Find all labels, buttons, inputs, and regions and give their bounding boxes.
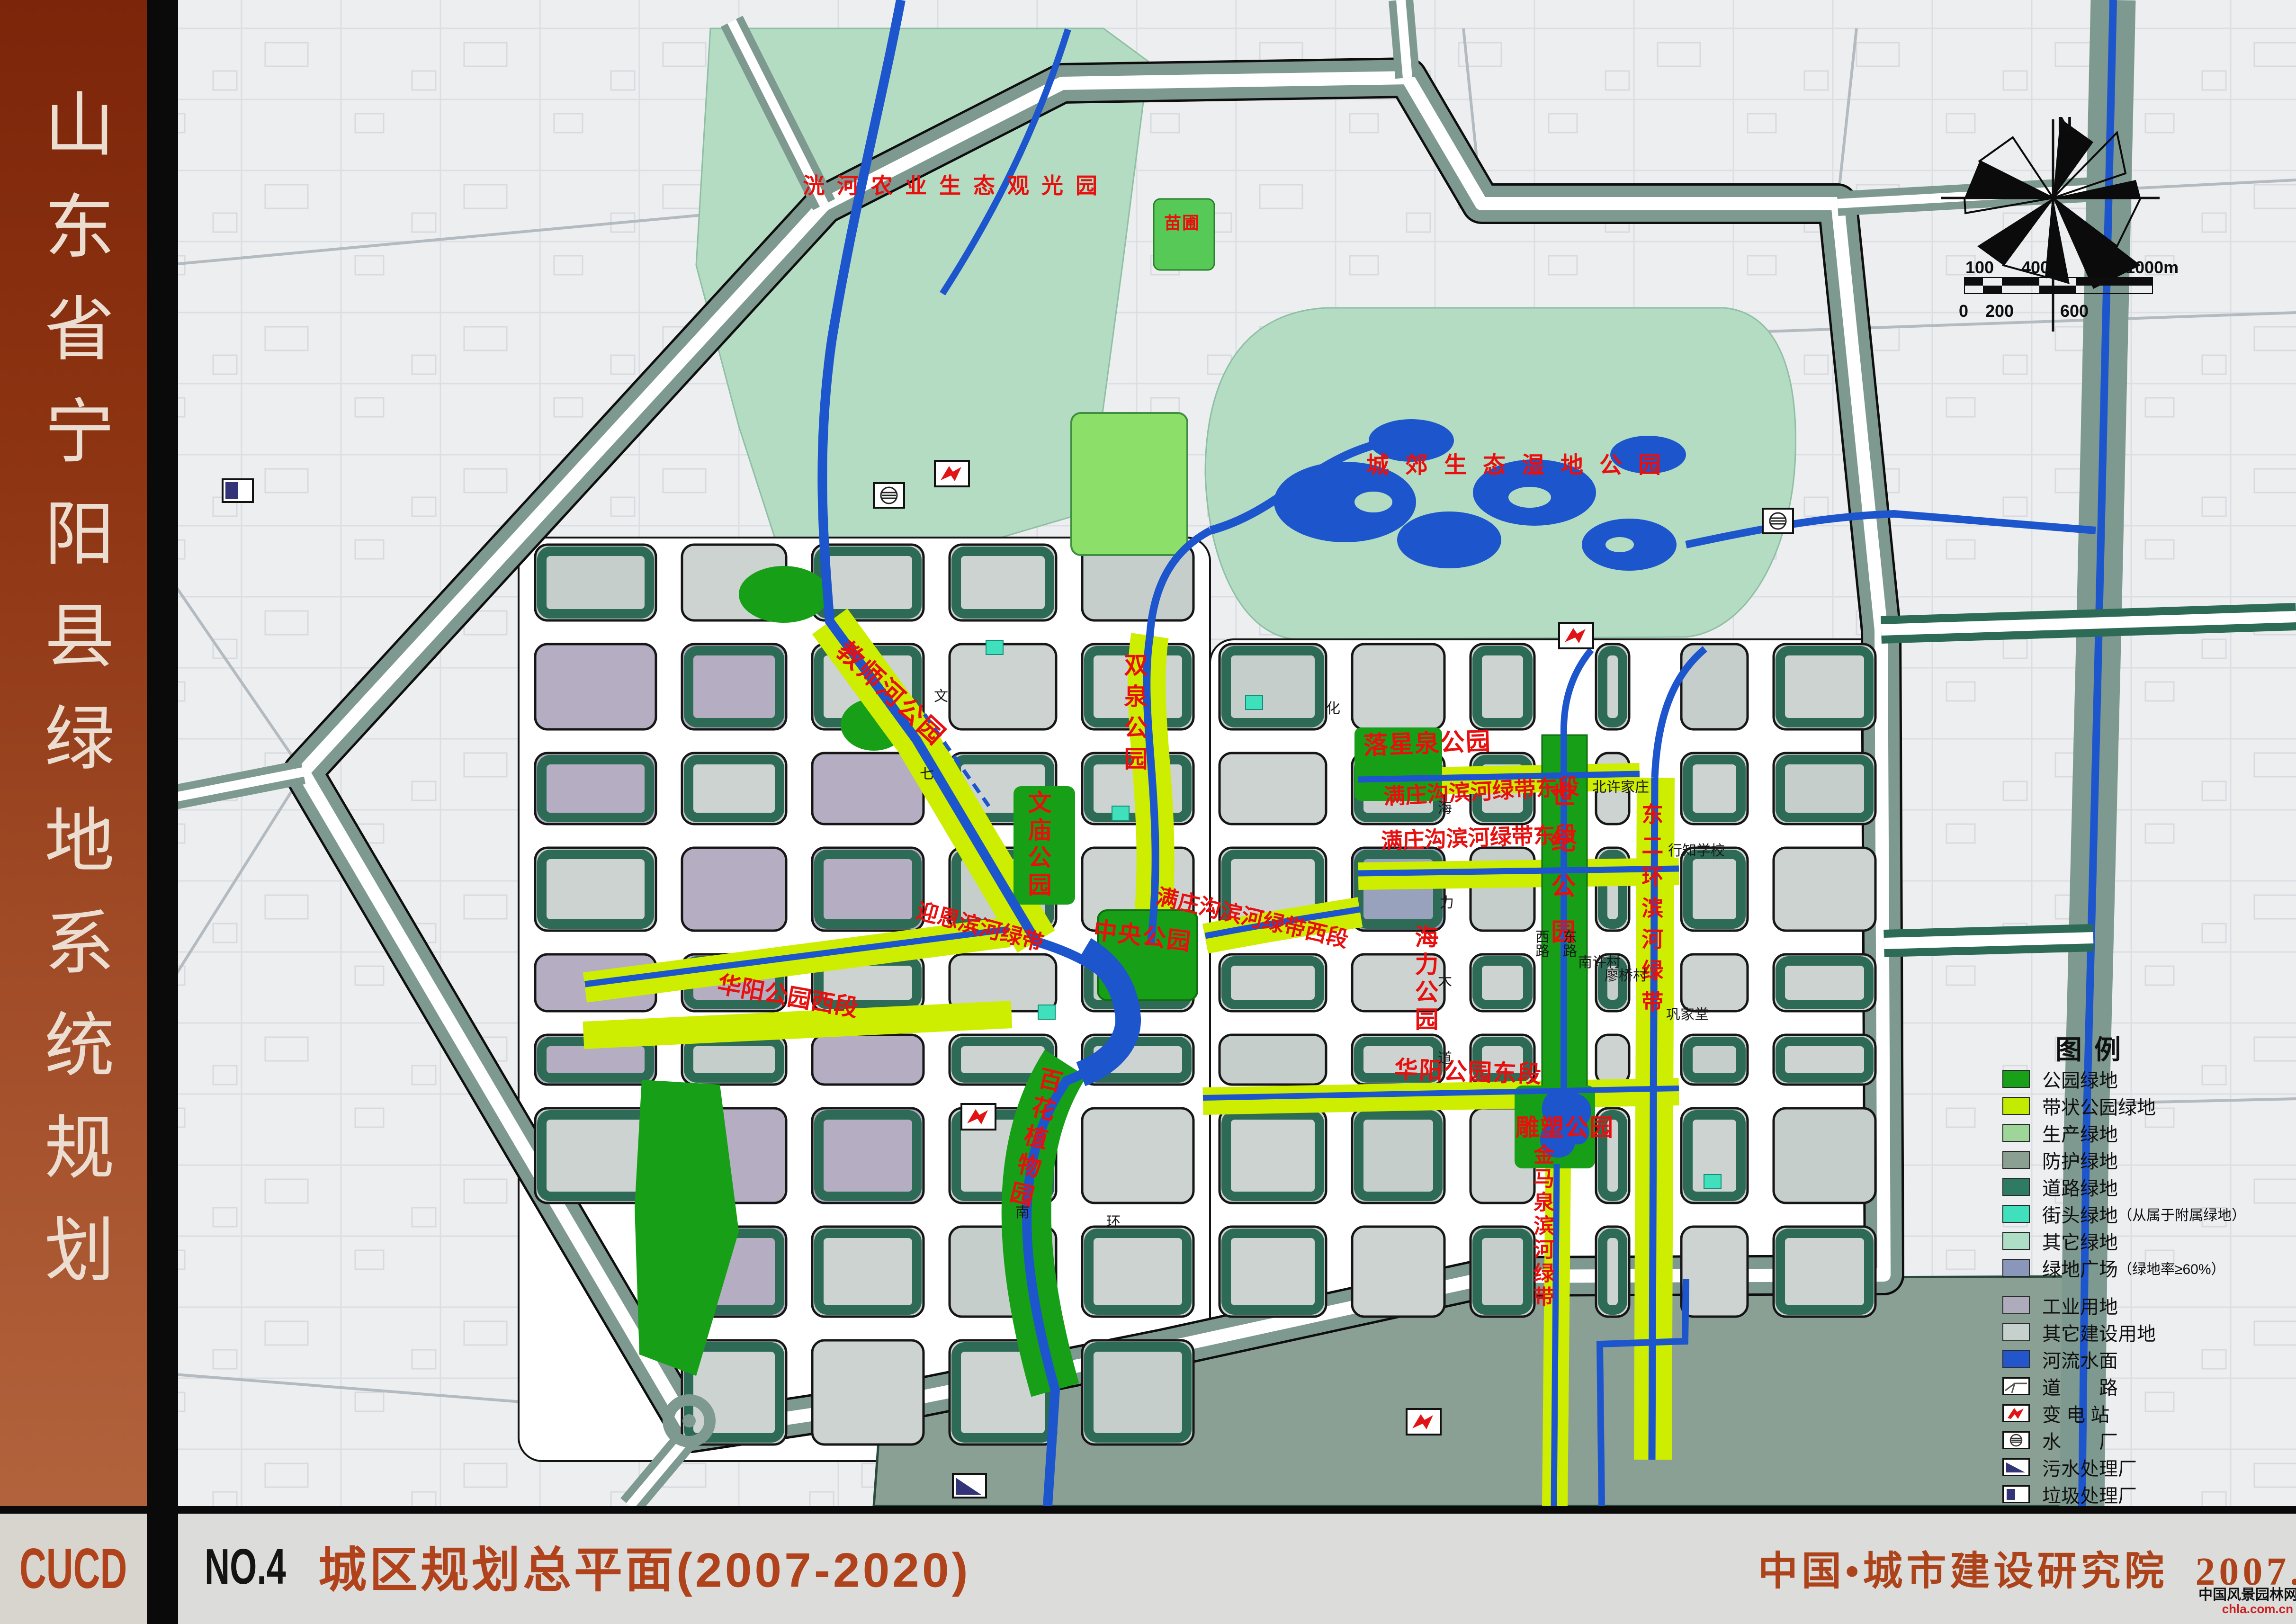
substation-icon xyxy=(961,1104,996,1130)
city-block xyxy=(1220,644,1326,729)
city-block xyxy=(1774,1227,1875,1317)
substation-icon xyxy=(935,461,969,486)
city-block xyxy=(812,1340,924,1445)
city-block xyxy=(1681,1227,1748,1317)
org-logo: CUCD xyxy=(19,1536,127,1602)
map-canvas xyxy=(0,0,2296,1624)
city-block xyxy=(535,848,656,931)
legend-label: 其它建设用地 xyxy=(2042,1319,2156,1346)
sewage-icon xyxy=(2002,1458,2030,1476)
legend-item: 防护绿地 xyxy=(2002,1149,2118,1170)
legend-label: 带状公园绿地 xyxy=(2042,1092,2156,1120)
city-block xyxy=(1220,1108,1326,1203)
legend-item: 工业用地 xyxy=(2002,1295,2118,1316)
legend-swatch xyxy=(2002,1259,2030,1277)
compass-north-label: N xyxy=(2057,113,2072,136)
legend-swatch xyxy=(2002,1232,2030,1250)
legend-item: 公园绿地 xyxy=(2002,1068,2118,1089)
legend-item: 水 厂 xyxy=(2002,1430,2118,1451)
city-block xyxy=(1681,644,1748,729)
legend-swatch xyxy=(2002,1070,2030,1088)
legend-label: 河流水面 xyxy=(2042,1346,2118,1373)
legend-item: 生产绿地 xyxy=(2002,1122,2118,1143)
legend-label: 防护绿地 xyxy=(2042,1146,2118,1174)
watermark-cn: 中国风景园林网 xyxy=(2198,1588,2293,1603)
sheet-series-title: 山东省宁阳县绿地系统规划 xyxy=(23,88,125,1315)
city-block xyxy=(812,1035,924,1085)
city-block xyxy=(1774,644,1875,729)
legend-label: 道路绿地 xyxy=(2042,1173,2118,1201)
legend-label: 道 路 xyxy=(2042,1373,2118,1400)
legend-label: 垃圾处理厂 xyxy=(2042,1480,2137,1508)
legend-item: 道路绿地 xyxy=(2002,1176,2118,1197)
city-block xyxy=(1774,1108,1875,1203)
legend-item: 带状公园绿地 xyxy=(2002,1095,2156,1116)
planning-map-sheet: 洸河农业生态观光园城郊生态湿地公园苗圃教师河公园双泉公园落星泉公园满庄沟滨河绿带… xyxy=(0,0,2296,1624)
legend-note: （绿地率≥60%） xyxy=(2118,1257,2225,1278)
legend-item: 变 电 站 xyxy=(2002,1403,2109,1424)
city-block xyxy=(1082,1227,1193,1317)
lightning-icon xyxy=(2002,1404,2030,1422)
city-block xyxy=(1220,1035,1326,1085)
divider-strip xyxy=(147,0,178,1624)
legend-swatch xyxy=(2002,1323,2030,1341)
legend-label: 水 厂 xyxy=(2042,1427,2118,1454)
city-block xyxy=(1352,1227,1444,1317)
city-block xyxy=(1774,848,1875,931)
sidebar-title-band: 山东省宁阳县绿地系统规划 xyxy=(0,0,147,1506)
legend-item: 绿地广场（绿地率≥60%） xyxy=(2002,1257,2225,1278)
legend-item: 垃圾处理厂 xyxy=(2002,1484,2137,1505)
garbage-plant-icon xyxy=(223,479,253,502)
road-icon xyxy=(2002,1377,2030,1395)
legend-swatch xyxy=(2002,1205,2030,1223)
sheet-number: NO.4 xyxy=(205,1538,286,1596)
watermark: 中国风景园林网 chla.com.cn xyxy=(2198,1588,2293,1615)
legend-swatch xyxy=(2002,1178,2030,1196)
watermark-en: chla.com.cn xyxy=(2198,1603,2293,1615)
legend-item: 污水处理厂 xyxy=(2002,1457,2137,1478)
legend-label: 公园绿地 xyxy=(2042,1065,2118,1093)
city-block xyxy=(1082,1340,1193,1445)
legend-title: 图例 xyxy=(2055,1029,2133,1067)
sewage-plant-icon xyxy=(953,1474,986,1498)
city-block xyxy=(1220,1227,1326,1317)
city-block xyxy=(1352,954,1444,1011)
city-block xyxy=(1596,1035,1629,1085)
city-block xyxy=(535,644,656,729)
legend-label: 污水处理厂 xyxy=(2042,1454,2137,1481)
legend-item: 其它绿地 xyxy=(2002,1230,2118,1251)
legend-item: 街头绿地（从属于附属绿地） xyxy=(2002,1203,2246,1224)
city-block xyxy=(1082,1108,1193,1203)
legend: 图例 公园绿地带状公园绿地生产绿地防护绿地道路绿地街头绿地（从属于附属绿地）其它… xyxy=(2002,1029,2294,1507)
legend-label: 工业用地 xyxy=(2042,1292,2118,1319)
legend-label: 生产绿地 xyxy=(2042,1119,2118,1147)
waterworks-icon xyxy=(2002,1431,2030,1449)
footer-divider xyxy=(147,1514,178,1624)
footer-bar: CUCD NO.4 城区规划总平面(2007-2020) 中国•城市建设研究院 … xyxy=(0,1506,2296,1624)
legend-label: 其它绿地 xyxy=(2042,1227,2118,1255)
legend-swatch xyxy=(2002,1350,2030,1368)
waterworks-icon xyxy=(1763,509,1793,533)
legend-label: 变 电 站 xyxy=(2042,1400,2109,1427)
legend-swatch xyxy=(2002,1124,2030,1142)
city-block xyxy=(1681,954,1748,1011)
legend-swatch xyxy=(2002,1296,2030,1314)
city-block xyxy=(682,848,786,931)
city-block xyxy=(812,848,924,931)
legend-item: 道 路 xyxy=(2002,1376,2118,1397)
city-block xyxy=(1220,753,1326,824)
legend-item: 其它建设用地 xyxy=(2002,1322,2156,1343)
legend-swatch xyxy=(2002,1151,2030,1169)
legend-note: （从属于附属绿地） xyxy=(2118,1203,2246,1224)
city-block xyxy=(682,644,786,729)
city-block xyxy=(1352,644,1444,729)
substation-icon xyxy=(1559,623,1593,648)
footer-logo-cell: CUCD xyxy=(0,1514,147,1624)
substation-icon xyxy=(1407,1409,1441,1435)
city-block xyxy=(812,1108,924,1203)
legend-item: 河流水面 xyxy=(2002,1349,2118,1370)
garbage-icon xyxy=(2002,1485,2030,1503)
sheet-title: 城区规划总平面(2007-2020) xyxy=(318,1531,971,1601)
city-block xyxy=(812,1227,924,1317)
city-block xyxy=(1352,1108,1444,1203)
city-block xyxy=(950,644,1056,729)
legend-label: 绿地广场 xyxy=(2042,1254,2118,1282)
legend-swatch xyxy=(2002,1097,2030,1115)
waterworks-icon xyxy=(874,483,904,508)
legend-label: 街头绿地 xyxy=(2042,1200,2118,1228)
credit-org: 中国•城市建设研究院 xyxy=(1758,1550,2168,1594)
